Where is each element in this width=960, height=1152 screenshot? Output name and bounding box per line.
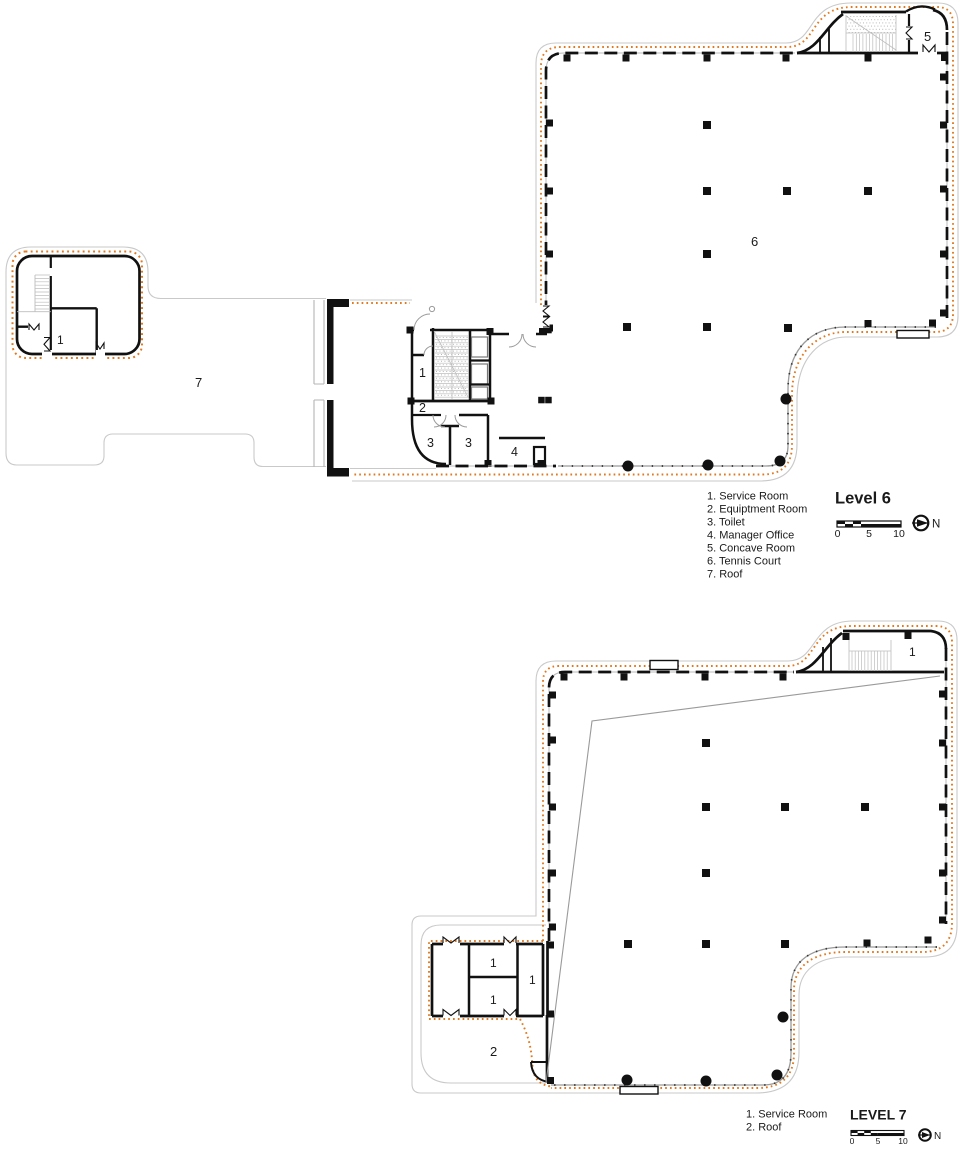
svg-text:6: 6 bbox=[751, 234, 758, 249]
svg-text:1: 1 bbox=[490, 993, 497, 1007]
svg-text:3. Toilet: 3. Toilet bbox=[707, 517, 745, 529]
svg-text:1. Service Room: 1. Service Room bbox=[746, 1109, 827, 1121]
svg-text:2: 2 bbox=[490, 1044, 497, 1059]
svg-text:5: 5 bbox=[876, 1136, 881, 1146]
svg-text:1: 1 bbox=[419, 366, 426, 380]
svg-text:0: 0 bbox=[835, 528, 841, 540]
svg-text:7. Roof: 7. Roof bbox=[707, 569, 743, 581]
svg-text:1: 1 bbox=[57, 333, 64, 347]
svg-text:LEVEL 7: LEVEL 7 bbox=[850, 1107, 907, 1123]
svg-text:Level 6: Level 6 bbox=[835, 490, 891, 508]
svg-text:2. Roof: 2. Roof bbox=[746, 1122, 782, 1134]
svg-text:2. Equiptment Room: 2. Equiptment Room bbox=[707, 504, 807, 516]
svg-text:6. Tennis Court: 6. Tennis Court bbox=[707, 556, 781, 568]
svg-text:N: N bbox=[932, 519, 940, 531]
svg-text:2: 2 bbox=[419, 401, 426, 415]
svg-text:1: 1 bbox=[909, 645, 916, 659]
svg-text:7: 7 bbox=[195, 375, 202, 390]
svg-text:3: 3 bbox=[427, 436, 434, 450]
svg-text:4: 4 bbox=[511, 445, 518, 459]
svg-text:4. Manager Office: 4. Manager Office bbox=[707, 530, 794, 542]
svg-text:1: 1 bbox=[529, 973, 536, 987]
svg-text:5: 5 bbox=[924, 29, 931, 44]
svg-text:1. Service Room: 1. Service Room bbox=[707, 491, 788, 503]
svg-text:5. Concave Room: 5. Concave Room bbox=[707, 543, 795, 555]
svg-text:10: 10 bbox=[893, 528, 905, 540]
svg-text:5: 5 bbox=[866, 528, 872, 540]
svg-text:3: 3 bbox=[465, 436, 472, 450]
svg-text:N: N bbox=[934, 1131, 941, 1142]
svg-text:0: 0 bbox=[850, 1136, 855, 1146]
svg-text:1: 1 bbox=[490, 956, 497, 970]
svg-text:10: 10 bbox=[898, 1136, 908, 1146]
